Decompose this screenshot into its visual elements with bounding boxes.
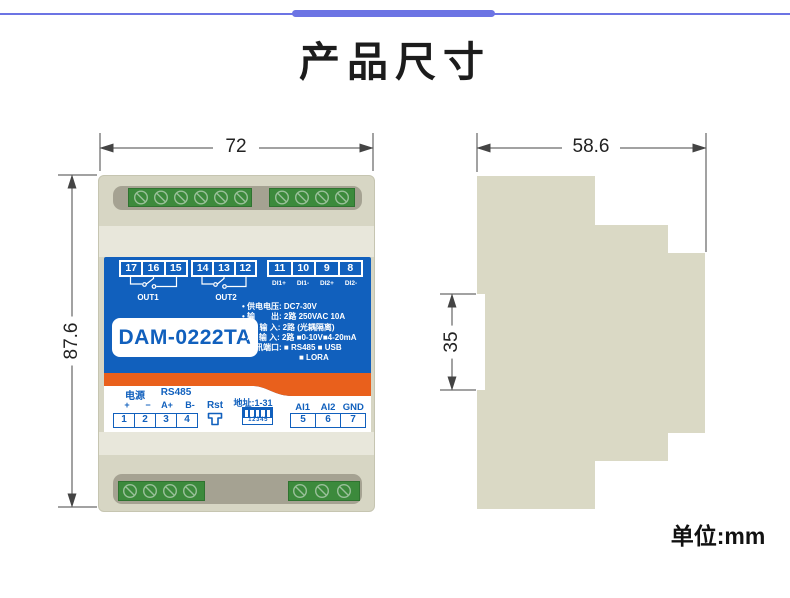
spec-line: • 供电电压: DC7-30V bbox=[242, 302, 370, 312]
arrow-up bbox=[68, 176, 76, 188]
terminal-block-top-left bbox=[128, 188, 252, 207]
terminal-number: 3 bbox=[155, 414, 176, 427]
terminal-number: 9 bbox=[314, 262, 338, 275]
polarity-b-minus: B- bbox=[182, 400, 198, 410]
product-dimensions-page: 产品尺寸 bbox=[0, 0, 790, 598]
ai2-label: AI2 bbox=[315, 402, 340, 413]
arrow-down bbox=[68, 494, 76, 506]
case-groove bbox=[99, 432, 374, 455]
dim-depth-value: 58.6 bbox=[562, 136, 620, 158]
dim-width-value: 72 bbox=[213, 136, 259, 158]
di-label: DI1- bbox=[291, 280, 315, 287]
terminal-block-bottom-right bbox=[288, 481, 360, 501]
relay-symbol-out2 bbox=[191, 276, 257, 293]
accent-thick-bar bbox=[292, 10, 495, 17]
relay-terminal-group-2: 14 13 12 bbox=[191, 260, 257, 277]
spec-list: • 供电电压: DC7-30V • 输 出: 2路 250VAC 10A • D… bbox=[242, 302, 370, 364]
terminal-number: 16 bbox=[141, 262, 163, 275]
terminal-number: 1 bbox=[114, 414, 134, 427]
arrow-up bbox=[448, 295, 456, 307]
arrow-left bbox=[478, 144, 490, 152]
analog-labels-row: AI1 AI2 GND bbox=[290, 402, 366, 413]
spec-line: • A I 输 入: 2路 ■0-10V■4-20mA bbox=[242, 333, 370, 343]
di-labels-row: DI1+ DI1- DI2+ DI2- bbox=[267, 280, 363, 287]
arrow-right bbox=[360, 144, 372, 152]
di-terminal-group: 11 10 9 8 bbox=[267, 260, 363, 277]
terminal-number: 12 bbox=[234, 262, 255, 275]
gnd-label: GND bbox=[341, 402, 366, 413]
power-terminal-group: 1 2 3 4 bbox=[113, 413, 198, 428]
dip-switch-numbers: 1 2 3 4 5 bbox=[243, 418, 272, 423]
relay-symbol-out1 bbox=[119, 276, 188, 293]
rs485-label: RS485 bbox=[156, 387, 196, 398]
arrow-down bbox=[448, 377, 456, 389]
analog-terminal-group: 5 6 7 bbox=[290, 413, 366, 428]
ai1-label: AI1 bbox=[290, 402, 315, 413]
polarity-a-plus: A+ bbox=[159, 400, 175, 410]
terminal-block-top-right bbox=[269, 188, 355, 207]
spec-line: • 输 出: 2路 250VAC 10A bbox=[242, 312, 370, 322]
model-badge: DAM-0222TA bbox=[112, 318, 258, 357]
terminal-number: 6 bbox=[315, 414, 340, 427]
di-label: DI1+ bbox=[267, 280, 291, 287]
polarity-minus: − bbox=[140, 400, 156, 410]
page-title: 产品尺寸 bbox=[0, 28, 790, 88]
out1-label: OUT1 bbox=[130, 293, 166, 302]
terminal-number: 5 bbox=[291, 414, 315, 427]
module-front-view: 17 16 15 14 13 12 11 10 9 8 DI1+ DI1- DI… bbox=[98, 175, 375, 512]
terminal-number: 4 bbox=[176, 414, 197, 427]
dim-rail-value: 35 bbox=[441, 325, 463, 358]
side-view-profile bbox=[477, 176, 705, 509]
reset-button-icon bbox=[206, 412, 224, 426]
terminal-number: 10 bbox=[291, 262, 315, 275]
arrow-left bbox=[101, 144, 113, 152]
relay-terminal-group-1: 17 16 15 bbox=[119, 260, 188, 277]
terminal-number: 11 bbox=[269, 262, 291, 275]
di-label: DI2+ bbox=[315, 280, 339, 287]
spec-line: • 通讯端口: ■ RS485 ■ USB bbox=[242, 343, 370, 353]
rst-label: Rst bbox=[204, 400, 226, 411]
spec-line: • D I 输 入: 2路 (光耦隔离) bbox=[242, 323, 370, 333]
case-groove bbox=[99, 226, 374, 257]
faceplate-label: 17 16 15 14 13 12 11 10 9 8 DI1+ DI1- DI… bbox=[104, 257, 371, 432]
dip-switch-icon: 1 2 3 4 5 bbox=[242, 407, 273, 425]
dim-height-value: 87.6 bbox=[61, 317, 83, 366]
unit-label: 单位:mm bbox=[648, 517, 788, 551]
terminal-number: 15 bbox=[164, 262, 186, 275]
terminal-number: 7 bbox=[340, 414, 365, 427]
terminal-block-bottom-left bbox=[118, 481, 205, 501]
polarity-plus: + bbox=[119, 400, 135, 410]
terminal-number: 8 bbox=[338, 262, 362, 275]
spec-line: ■ LORA bbox=[242, 353, 370, 363]
terminal-number: 17 bbox=[121, 262, 141, 275]
terminal-number: 13 bbox=[212, 262, 233, 275]
terminal-number: 2 bbox=[134, 414, 155, 427]
arrow-right bbox=[693, 144, 705, 152]
out2-label: OUT2 bbox=[208, 293, 244, 302]
terminal-number: 14 bbox=[193, 262, 212, 275]
di-label: DI2- bbox=[339, 280, 363, 287]
